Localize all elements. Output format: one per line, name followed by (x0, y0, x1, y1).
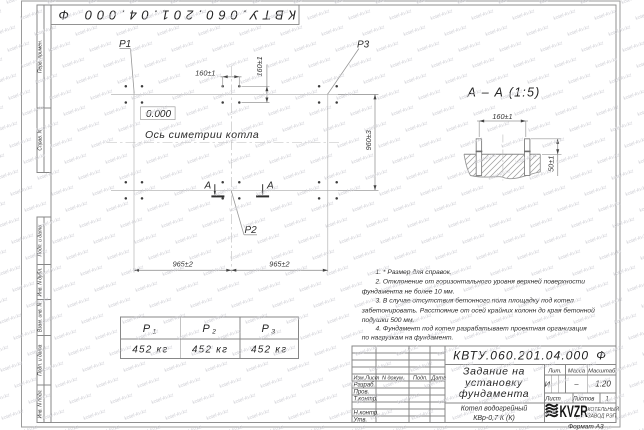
svg-text:kotel-kv.kz: kotel-kv.kz (137, 376, 161, 390)
svg-text:kotel-kv.kz: kotel-kv.kz (348, 8, 372, 22)
svg-text:kotel-kv.kz: kotel-kv.kz (171, 40, 195, 54)
svg-text:kotel-kv.kz: kotel-kv.kz (635, 8, 644, 22)
svg-text:kotel-kv.kz: kotel-kv.kz (614, 312, 638, 326)
svg-text:kotel-kv.kz: kotel-kv.kz (106, 200, 130, 214)
svg-text:kotel-kv.kz: kotel-kv.kz (626, 232, 644, 246)
svg-text:kotel-kv.kz: kotel-kv.kz (530, 216, 554, 230)
svg-text:kotel-kv.kz: kotel-kv.kz (280, 24, 304, 38)
svg-text:kotel-kv.kz: kotel-kv.kz (602, 392, 626, 406)
svg-text:kotel-kv.kz: kotel-kv.kz (585, 232, 609, 246)
svg-text:kotel-kv.kz: kotel-kv.kz (0, 392, 11, 406)
svg-text:kotel-kv.kz: kotel-kv.kz (328, 360, 352, 374)
svg-text:kotel-kv.kz: kotel-kv.kz (120, 216, 144, 230)
svg-text:kotel-kv.kz: kotel-kv.kz (215, 184, 239, 198)
svg-text:kotel-kv.kz: kotel-kv.kz (390, 56, 414, 70)
svg-text:kotel-kv.kz: kotel-kv.kz (435, 248, 459, 262)
svg-text:kotel-kv.kz: kotel-kv.kz (233, 392, 257, 406)
svg-text:kotel-kv.kz: kotel-kv.kz (594, 8, 618, 22)
svg-text:kotel-kv.kz: kotel-kv.kz (364, 120, 388, 134)
svg-text:kotel-kv.kz: kotel-kv.kz (0, 168, 20, 182)
svg-text:kotel-kv.kz: kotel-kv.kz (638, 152, 644, 166)
svg-text:kotel-kv.kz: kotel-kv.kz (542, 136, 566, 150)
svg-text:kotel-kv.kz: kotel-kv.kz (431, 56, 455, 70)
svg-text:kotel-kv.kz: kotel-kv.kz (80, 264, 104, 278)
svg-text:kotel-kv.kz: kotel-kv.kz (288, 408, 312, 422)
svg-text:kotel-kv.kz: kotel-kv.kz (178, 376, 202, 390)
svg-text:kotel-kv.kz: kotel-kv.kz (462, 232, 486, 246)
svg-text:kotel-kv.kz: kotel-kv.kz (571, 216, 595, 230)
svg-text:kotel-kv.kz: kotel-kv.kz (295, 88, 319, 102)
svg-text:kotel-kv.kz: kotel-kv.kz (514, 104, 538, 118)
svg-text:kotel-kv.kz: kotel-kv.kz (260, 376, 284, 390)
svg-text:kotel-kv.kz: kotel-kv.kz (432, 104, 456, 118)
svg-text:kotel-kv.kz: kotel-kv.kz (216, 232, 240, 246)
svg-text:kotel-kv.kz: kotel-kv.kz (393, 200, 417, 214)
svg-text:kotel-kv.kz: kotel-kv.kz (637, 104, 644, 118)
svg-text:kotel-kv.kz: kotel-kv.kz (281, 72, 305, 86)
svg-text:kotel-kv.kz: kotel-kv.kz (321, 24, 345, 38)
svg-text:kotel-kv.kz: kotel-kv.kz (570, 168, 594, 182)
svg-text:kotel-kv.kz: kotel-kv.kz (528, 120, 552, 134)
svg-text:kotel-kv.kz: kotel-kv.kz (0, 56, 4, 70)
svg-text:kotel-kv.kz: kotel-kv.kz (517, 248, 541, 262)
svg-text:kotel-kv.kz: kotel-kv.kz (286, 312, 310, 326)
svg-text:kotel-kv.kz: kotel-kv.kz (527, 72, 551, 86)
svg-text:kotel-kv.kz: kotel-kv.kz (227, 104, 251, 118)
svg-text:kotel-kv.kz: kotel-kv.kz (258, 280, 282, 294)
svg-text:kotel-kv.kz: kotel-kv.kz (144, 56, 168, 70)
svg-text:kotel-kv.kz: kotel-kv.kz (421, 232, 445, 246)
svg-text:kotel-kv.kz: kotel-kv.kz (257, 232, 281, 246)
svg-text:kotel-kv.kz: kotel-kv.kz (376, 40, 400, 54)
svg-text:kotel-kv.kz: kotel-kv.kz (298, 232, 322, 246)
svg-text:kotel-kv.kz: kotel-kv.kz (611, 168, 635, 182)
svg-text:kotel-kv.kz: kotel-kv.kz (272, 296, 296, 310)
svg-text:kotel-kv.kz: kotel-kv.kz (391, 104, 415, 118)
svg-text:kotel-kv.kz: kotel-kv.kz (595, 56, 619, 70)
svg-text:kotel-kv.kz: kotel-kv.kz (219, 376, 243, 390)
svg-text:kotel-kv.kz: kotel-kv.kz (315, 392, 339, 406)
svg-text:kotel-kv.kz: kotel-kv.kz (7, 40, 31, 54)
svg-text:kotel-kv.kz: kotel-kv.kz (83, 408, 107, 422)
svg-text:Лист: Лист (544, 397, 560, 403)
svg-text:kotel-kv.kz: kotel-kv.kz (147, 200, 171, 214)
svg-text:kotel-kv.kz: kotel-kv.kz (309, 104, 333, 118)
svg-text:Взам. инв. N: Взам. инв. N (38, 303, 44, 333)
svg-text:kotel-kv.kz: kotel-kv.kz (37, 168, 61, 182)
svg-text:kotel-kv.kz: kotel-kv.kz (189, 248, 213, 262)
svg-text:kotel-kv.kz: kotel-kv.kz (377, 88, 401, 102)
svg-text:kotel-kv.kz: kotel-kv.kz (284, 216, 308, 230)
svg-text:kotel-kv.kz: kotel-kv.kz (340, 280, 364, 294)
svg-text:kotel-kv.kz: kotel-kv.kz (35, 72, 59, 86)
svg-text:kotel-kv.kz: kotel-kv.kz (329, 408, 353, 422)
svg-text:kotel-kv.kz: kotel-kv.kz (362, 24, 386, 38)
svg-text:kotel-kv.kz: kotel-kv.kz (164, 360, 188, 374)
svg-text:kotel-kv.kz: kotel-kv.kz (13, 328, 37, 342)
svg-text:kotel-kv.kz: kotel-kv.kz (599, 248, 623, 262)
svg-text:kotel-kv.kz: kotel-kv.kz (583, 136, 607, 150)
svg-text:kotel-kv.kz: kotel-kv.kz (62, 56, 86, 70)
svg-text:kotel-kv.kz: kotel-kv.kz (609, 72, 633, 86)
svg-text:kotel-kv.kz: kotel-kv.kz (242, 168, 266, 182)
svg-text:kotel-kv.kz: kotel-kv.kz (0, 8, 3, 22)
svg-text:kotel-kv.kz: kotel-kv.kz (458, 40, 482, 54)
svg-text:kotel-kv.kz: kotel-kv.kz (133, 184, 157, 198)
svg-text:kotel-kv.kz: kotel-kv.kz (89, 40, 113, 54)
svg-text:kotel-kv.kz: kotel-kv.kz (174, 184, 198, 198)
svg-text:kotel-kv.kz: kotel-kv.kz (96, 376, 120, 390)
svg-text:kotel-kv.kz: kotel-kv.kz (557, 200, 581, 214)
svg-text:kotel-kv.kz: kotel-kv.kz (486, 72, 510, 86)
svg-text:kotel-kv.kz: kotel-kv.kz (20, 8, 44, 22)
svg-text:kotel-kv.kz: kotel-kv.kz (308, 56, 332, 70)
svg-text:kotel-kv.kz: kotel-kv.kz (132, 136, 156, 150)
svg-text:kotel-kv.kz: kotel-kv.kz (568, 72, 592, 86)
svg-text:kotel-kv.kz: kotel-kv.kz (351, 152, 375, 166)
svg-text:kotel-kv.kz: kotel-kv.kz (103, 56, 127, 70)
svg-text:kotel-kv.kz: kotel-kv.kz (79, 216, 103, 230)
svg-text:kotel-kv.kz: kotel-kv.kz (190, 296, 214, 310)
svg-text:kotel-kv.kz: kotel-kv.kz (64, 152, 88, 166)
svg-text:kotel-kv.kz: kotel-kv.kz (338, 184, 362, 198)
svg-text:kotel-kv.kz: kotel-kv.kz (569, 120, 593, 134)
svg-text:kotel-kv.kz: kotel-kv.kz (490, 264, 514, 278)
svg-text:kotel-kv.kz: kotel-kv.kz (175, 232, 199, 246)
svg-text:160±1: 160±1 (492, 112, 512, 121)
svg-text:kotel-kv.kz: kotel-kv.kz (203, 264, 227, 278)
svg-text:kotel-kv.kz: kotel-kv.kz (296, 136, 320, 150)
svg-text:kotel-kv.kz: kotel-kv.kz (420, 184, 444, 198)
svg-text:kotel-kv.kz: kotel-kv.kz (531, 264, 555, 278)
svg-text:kotel-kv.kz: kotel-kv.kz (108, 296, 132, 310)
svg-text:kotel-kv.kz: kotel-kv.kz (0, 72, 18, 86)
svg-text:kotel-kv.kz: kotel-kv.kz (8, 88, 32, 102)
svg-text:kotel-kv.kz: kotel-kv.kz (91, 136, 115, 150)
svg-text:kotel-kv.kz: kotel-kv.kz (192, 392, 216, 406)
svg-text:kotel-kv.kz: kotel-kv.kz (582, 88, 606, 102)
svg-text:kotel-kv.kz: kotel-kv.kz (149, 296, 173, 310)
svg-text:kotel-kv.kz: kotel-kv.kz (268, 104, 292, 118)
svg-text:kotel-kv.kz: kotel-kv.kz (38, 216, 62, 230)
svg-text:kotel-kv.kz: kotel-kv.kz (312, 248, 336, 262)
svg-text:kotel-kv.kz: kotel-kv.kz (503, 232, 527, 246)
svg-text:kotel-kv.kz: kotel-kv.kz (615, 360, 639, 374)
svg-text:kotel-kv.kz: kotel-kv.kz (36, 120, 60, 134)
svg-text:kotel-kv.kz: kotel-kv.kz (369, 360, 393, 374)
svg-text:kotel-kv.kz: kotel-kv.kz (54, 328, 78, 342)
svg-text:kotel-kv.kz: kotel-kv.kz (68, 344, 92, 358)
svg-text:kotel-kv.kz: kotel-kv.kz (472, 56, 496, 70)
svg-text:kotel-kv.kz: kotel-kv.kz (324, 168, 348, 182)
svg-text:kotel-kv.kz: kotel-kv.kz (541, 88, 565, 102)
svg-text:kotel-kv.kz: kotel-kv.kz (310, 152, 334, 166)
svg-text:kotel-kv.kz: kotel-kv.kz (22, 104, 46, 118)
svg-text:kotel-kv.kz: kotel-kv.kz (445, 72, 469, 86)
svg-text:kotel-kv.kz: kotel-kv.kz (597, 152, 621, 166)
svg-text:kotel-kv.kz: kotel-kv.kz (389, 8, 413, 22)
svg-text:kotel-kv.kz: kotel-kv.kz (274, 392, 298, 406)
svg-text:kotel-kv.kz: kotel-kv.kz (287, 360, 311, 374)
svg-text:kotel-kv.kz: kotel-kv.kz (553, 8, 577, 22)
svg-text:kotel-kv.kz: kotel-kv.kz (639, 200, 644, 214)
svg-text:kotel-kv.kz: kotel-kv.kz (612, 216, 636, 230)
svg-text:kotel-kv.kz: kotel-kv.kz (307, 8, 331, 22)
svg-text:kotel-kv.kz: kotel-kv.kz (105, 152, 129, 166)
svg-text:kotel-kv.kz: kotel-kv.kz (502, 184, 526, 198)
svg-text:kotel-kv.kz: kotel-kv.kz (66, 248, 90, 262)
svg-text:kotel-kv.kz: kotel-kv.kz (206, 408, 230, 422)
svg-text:kotel-kv.kz: kotel-kv.kz (526, 24, 550, 38)
svg-text:kotel-kv.kz: kotel-kv.kz (301, 376, 325, 390)
svg-text:kotel-kv.kz: kotel-kv.kz (616, 408, 640, 422)
svg-text:kotel-kv.kz: kotel-kv.kz (218, 328, 242, 342)
svg-text:kotel-kv.kz: kotel-kv.kz (554, 56, 578, 70)
svg-text:kotel-kv.kz: kotel-kv.kz (229, 200, 253, 214)
svg-text:kotel-kv.kz: kotel-kv.kz (270, 200, 294, 214)
svg-text:kotel-kv.kz: kotel-kv.kz (246, 360, 270, 374)
svg-text:Инв. N подл.: Инв. N подл. (38, 389, 44, 418)
svg-text:kotel-kv.kz: kotel-kv.kz (621, 0, 644, 6)
svg-text:kotel-kv.kz: kotel-kv.kz (157, 24, 181, 38)
svg-text:kotel-kv.kz: kotel-kv.kz (476, 248, 500, 262)
svg-text:kotel-kv.kz: kotel-kv.kz (0, 120, 19, 134)
svg-text:kotel-kv.kz: kotel-kv.kz (226, 56, 250, 70)
svg-text:kotel-kv.kz: kotel-kv.kz (93, 232, 117, 246)
svg-text:kotel-kv.kz: kotel-kv.kz (172, 88, 196, 102)
svg-text:kotel-kv.kz: kotel-kv.kz (12, 280, 36, 294)
svg-text:kotel-kv.kz: kotel-kv.kz (350, 104, 374, 118)
svg-text:kotel-kv.kz: kotel-kv.kz (76, 72, 100, 86)
svg-text:kotel-kv.kz: kotel-kv.kz (0, 216, 21, 230)
svg-text:kotel-kv.kz: kotel-kv.kz (513, 56, 537, 70)
svg-text:kotel-kv.kz: kotel-kv.kz (586, 280, 610, 294)
svg-text:kotel-kv.kz: kotel-kv.kz (9, 136, 33, 150)
svg-text:kotel-kv.kz: kotel-kv.kz (335, 40, 359, 54)
svg-text:kotel-kv.kz: kotel-kv.kz (378, 136, 402, 150)
svg-text:kotel-kv.kz: kotel-kv.kz (283, 168, 307, 182)
svg-text:kotel-kv.kz: kotel-kv.kz (501, 136, 525, 150)
svg-text:kotel-kv.kz: kotel-kv.kz (77, 120, 101, 134)
svg-text:kotel-kv.kz: kotel-kv.kz (202, 216, 226, 230)
svg-text:kotel-kv.kz: kotel-kv.kz (0, 24, 17, 38)
svg-text:kotel-kv.kz: kotel-kv.kz (392, 152, 416, 166)
svg-text:–: – (573, 380, 579, 389)
svg-text:kotel-kv.kz: kotel-kv.kz (297, 184, 321, 198)
svg-text:kotel-kv.kz: kotel-kv.kz (187, 152, 211, 166)
svg-text:kotel-kv.kz: kotel-kv.kz (447, 168, 471, 182)
svg-text:kotel-kv.kz: kotel-kv.kz (217, 280, 241, 294)
svg-text:kotel-kv.kz: kotel-kv.kz (42, 408, 66, 422)
svg-text:kotel-kv.kz: kotel-kv.kz (352, 200, 376, 214)
svg-text:kotel-kv.kz: kotel-kv.kz (161, 216, 185, 230)
svg-text:kotel-kv.kz: kotel-kv.kz (69, 392, 93, 406)
svg-text:kotel-kv.kz: kotel-kv.kz (363, 72, 387, 86)
svg-text:kotel-kv.kz: kotel-kv.kz (53, 280, 77, 294)
svg-text:kotel-kv.kz: kotel-kv.kz (406, 168, 430, 182)
svg-text:kotel-kv.kz: kotel-kv.kz (555, 104, 579, 118)
svg-text:КВТУ.060.201.04.000 Ф: КВТУ.060.201.04.000 Ф (54, 7, 296, 22)
svg-text:kotel-kv.kz: kotel-kv.kz (282, 120, 306, 134)
svg-text:kotel-kv.kz: kotel-kv.kz (232, 344, 256, 358)
svg-text:kotel-kv.kz: kotel-kv.kz (134, 232, 158, 246)
svg-text:kotel-kv.kz: kotel-kv.kz (411, 408, 435, 422)
svg-text:kotel-kv.kz: kotel-kv.kz (117, 72, 141, 86)
svg-text:kotel-kv.kz: kotel-kv.kz (529, 168, 553, 182)
svg-text:kotel-kv.kz: kotel-kv.kz (23, 152, 47, 166)
svg-text:kotel-kv.kz: kotel-kv.kz (544, 232, 568, 246)
svg-text:kotel-kv.kz: kotel-kv.kz (239, 24, 263, 38)
svg-text:kotel-kv.kz: kotel-kv.kz (151, 392, 175, 406)
svg-text:kotel-kv.kz: kotel-kv.kz (15, 424, 39, 430)
svg-text:kotel-kv.kz: kotel-kv.kz (204, 312, 228, 326)
svg-text:kotel-kv.kz: kotel-kv.kz (124, 408, 148, 422)
svg-text:kotel-kv.kz: kotel-kv.kz (213, 88, 237, 102)
svg-text:kotel-kv.kz: kotel-kv.kz (485, 24, 509, 38)
svg-text:kotel-kv.kz: kotel-kv.kz (418, 88, 442, 102)
svg-text:kotel-kv.kz: kotel-kv.kz (430, 8, 454, 22)
svg-text:kotel-kv.kz: kotel-kv.kz (365, 168, 389, 182)
svg-text:kotel-kv.kz: kotel-kv.kz (512, 8, 536, 22)
svg-text:kotel-kv.kz: kotel-kv.kz (311, 200, 335, 214)
svg-text:kotel-kv.kz: kotel-kv.kz (300, 328, 324, 342)
svg-text:kotel-kv.kz: kotel-kv.kz (67, 296, 91, 310)
svg-text:kotel-kv.kz: kotel-kv.kz (65, 200, 89, 214)
svg-text:kotel-kv.kz: kotel-kv.kz (567, 24, 591, 38)
svg-text:Подп.: Подп. (413, 375, 428, 381)
svg-text:kotel-kv.kz: kotel-kv.kz (448, 216, 472, 230)
svg-text:kotel-kv.kz: kotel-kv.kz (489, 216, 513, 230)
svg-text:kotel-kv.kz: kotel-kv.kz (92, 184, 116, 198)
svg-text:kotel-kv.kz: kotel-kv.kz (581, 40, 605, 54)
svg-text:kotel-kv.kz: kotel-kv.kz (516, 200, 540, 214)
svg-text:kotel-kv.kz: kotel-kv.kz (50, 136, 74, 150)
svg-text:kotel-kv.kz: kotel-kv.kz (90, 88, 114, 102)
svg-text:kotel-kv.kz: kotel-kv.kz (405, 120, 429, 134)
svg-text:kotel-kv.kz: kotel-kv.kz (314, 344, 338, 358)
svg-text:kotel-kv.kz: kotel-kv.kz (444, 24, 468, 38)
svg-text:kotel-kv.kz: kotel-kv.kz (487, 120, 511, 134)
svg-text:фундамента не более 10 мм.: фундамента не более 10 мм. (362, 288, 455, 296)
svg-text:kotel-kv.kz: kotel-kv.kz (81, 312, 105, 326)
svg-text:kotel-kv.kz: kotel-kv.kz (135, 280, 159, 294)
svg-text:kotel-kv.kz: kotel-kv.kz (165, 408, 189, 422)
svg-text:kotel-kv.kz: kotel-kv.kz (636, 56, 644, 70)
svg-text:kotel-kv.kz: kotel-kv.kz (244, 264, 268, 278)
svg-text:kotel-kv.kz: kotel-kv.kz (119, 168, 143, 182)
svg-text:А: А (204, 181, 212, 192)
svg-text:kotel-kv.kz: kotel-kv.kz (433, 152, 457, 166)
svg-text:kotel-kv.kz: kotel-kv.kz (449, 264, 473, 278)
svg-text:kotel-kv.kz: kotel-kv.kz (198, 24, 222, 38)
svg-text:kotel-kv.kz: kotel-kv.kz (121, 264, 145, 278)
svg-text:kotel-kv.kz: kotel-kv.kz (14, 376, 38, 390)
svg-text:kotel-kv.kz: kotel-kv.kz (313, 296, 337, 310)
svg-text:kotel-kv.kz: kotel-kv.kz (641, 296, 644, 310)
svg-text:kotel-kv.kz: kotel-kv.kz (247, 408, 271, 422)
svg-text:kotel-kv.kz: kotel-kv.kz (326, 264, 350, 278)
svg-text:kotel-kv.kz: kotel-kv.kz (110, 392, 134, 406)
svg-text:2: 2 (211, 329, 216, 336)
svg-text:kotel-kv.kz: kotel-kv.kz (104, 104, 128, 118)
svg-text:kotel-kv.kz: kotel-kv.kz (0, 360, 24, 374)
svg-text:kotel-kv.kz: kotel-kv.kz (158, 72, 182, 86)
svg-text:kotel-kv.kz: kotel-kv.kz (598, 200, 622, 214)
svg-text:kotel-kv.kz: kotel-kv.kz (584, 184, 608, 198)
svg-text:kotel-kv.kz: kotel-kv.kz (366, 216, 390, 230)
svg-text:kotel-kv.kz: kotel-kv.kz (0, 264, 22, 278)
svg-text:kotel-kv.kz: kotel-kv.kz (0, 200, 7, 214)
svg-text:kotel-kv.kz: kotel-kv.kz (625, 184, 644, 198)
svg-text:kotel-kv.kz: kotel-kv.kz (130, 40, 154, 54)
svg-text:kotel-kv.kz: kotel-kv.kz (394, 248, 418, 262)
svg-text:Пров.: Пров. (354, 390, 370, 396)
svg-text:kotel-kv.kz: kotel-kv.kz (380, 232, 404, 246)
svg-text:kotel-kv.kz: kotel-kv.kz (446, 120, 470, 134)
svg-text:kotel-kv.kz: kotel-kv.kz (267, 56, 291, 70)
svg-text:kotel-kv.kz: kotel-kv.kz (336, 88, 360, 102)
svg-text:kotel-kv.kz: kotel-kv.kz (623, 88, 644, 102)
svg-text:kotel-kv.kz: kotel-kv.kz (407, 216, 431, 230)
svg-text:kotel-kv.kz: kotel-kv.kz (24, 200, 48, 214)
svg-text:kotel-kv.kz: kotel-kv.kz (94, 280, 118, 294)
svg-text:kotel-kv.kz: kotel-kv.kz (0, 152, 6, 166)
svg-text:kotel-kv.kz: kotel-kv.kz (419, 136, 443, 150)
svg-text:kotel-kv.kz: kotel-kv.kz (403, 24, 427, 38)
svg-text:kotel-kv.kz: kotel-kv.kz (337, 136, 361, 150)
svg-text:kotel-kv.kz: kotel-kv.kz (230, 248, 254, 262)
svg-text:kotel-kv.kz: kotel-kv.kz (339, 232, 363, 246)
svg-text:kotel-kv.kz: kotel-kv.kz (11, 232, 35, 246)
svg-text:kotel-kv.kz: kotel-kv.kz (51, 184, 75, 198)
svg-text:kotel-kv.kz: kotel-kv.kz (629, 376, 644, 390)
svg-text:kotel-kv.kz: kotel-kv.kz (417, 40, 441, 54)
svg-text:kotel-kv.kz: kotel-kv.kz (534, 408, 558, 422)
svg-text:kotel-kv.kz: kotel-kv.kz (52, 232, 76, 246)
svg-text:kotel-kv.kz: kotel-kv.kz (201, 168, 225, 182)
svg-text:kotel-kv.kz: kotel-kv.kz (325, 216, 349, 230)
svg-text:kotel-kv.kz: kotel-kv.kz (353, 248, 377, 262)
svg-text:kotel-kv.kz: kotel-kv.kz (75, 24, 99, 38)
svg-text:kotel-kv.kz: kotel-kv.kz (176, 280, 200, 294)
svg-text:kotel-kv.kz: kotel-kv.kz (294, 40, 318, 54)
svg-text:kotel-kv.kz: kotel-kv.kz (63, 104, 87, 118)
svg-text:kotel-kv.kz: kotel-kv.kz (640, 248, 644, 262)
svg-text:kotel-kv.kz: kotel-kv.kz (49, 88, 73, 102)
svg-text:kotel-kv.kz: kotel-kv.kz (323, 120, 347, 134)
svg-text:kotel-kv.kz: kotel-kv.kz (630, 424, 644, 430)
svg-text:kotel-kv.kz: kotel-kv.kz (188, 200, 212, 214)
svg-text:kotel-kv.kz: kotel-kv.kz (622, 40, 644, 54)
svg-text:kotel-kv.kz: kotel-kv.kz (212, 40, 236, 54)
svg-text:kotel-kv.kz: kotel-kv.kz (327, 312, 351, 326)
svg-text:kotel-kv.kz: kotel-kv.kz (78, 168, 102, 182)
svg-text:kotel-kv.kz: kotel-kv.kz (322, 72, 346, 86)
svg-text:kotel-kv.kz: kotel-kv.kz (628, 328, 644, 342)
svg-text:kotel-kv.kz: kotel-kv.kz (461, 184, 485, 198)
svg-text:kotel-kv.kz: kotel-kv.kz (299, 280, 323, 294)
svg-text:kotel-kv.kz: kotel-kv.kz (146, 152, 170, 166)
svg-text:kotel-kv.kz: kotel-kv.kz (587, 328, 611, 342)
svg-text:kotel-kv.kz: kotel-kv.kz (240, 72, 264, 86)
svg-text:kotel-kv.kz: kotel-kv.kz (186, 104, 210, 118)
svg-text:kotel-kv.kz: kotel-kv.kz (558, 248, 582, 262)
svg-text:kotel-kv.kz: kotel-kv.kz (148, 248, 172, 262)
svg-text:kotel-kv.kz: kotel-kv.kz (540, 40, 564, 54)
svg-text:kotel-kv.kz: kotel-kv.kz (0, 344, 10, 358)
svg-text:kotel-kv.kz: kotel-kv.kz (95, 328, 119, 342)
svg-text:kotel-kv.kz: kotel-kv.kz (543, 184, 567, 198)
